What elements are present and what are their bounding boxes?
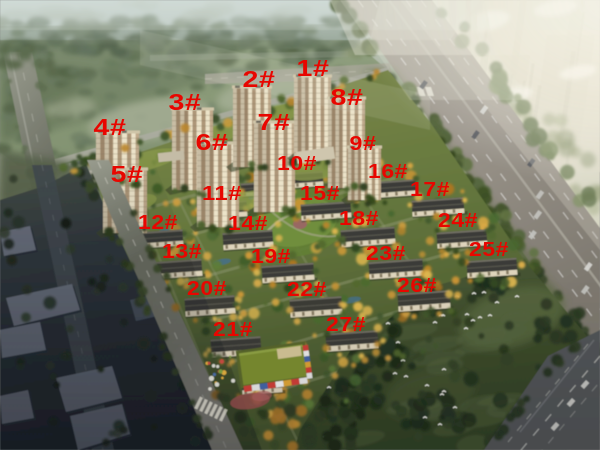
svg-text:19#: 19# [251,246,291,268]
svg-text:20#: 20# [187,278,227,300]
svg-text:15#: 15# [300,183,340,205]
svg-text:25#: 25# [469,239,509,261]
svg-text:22#: 22# [287,279,327,301]
svg-text:8#: 8# [331,84,364,110]
svg-text:24#: 24# [438,210,478,232]
svg-text:17#: 17# [410,179,450,201]
svg-text:13#: 13# [162,241,202,263]
svg-text:11#: 11# [202,183,242,205]
svg-text:14#: 14# [228,213,268,235]
svg-text:5#: 5# [111,161,144,187]
svg-text:12#: 12# [138,212,178,234]
svg-text:9#: 9# [350,133,377,155]
svg-text:6#: 6# [196,129,229,155]
svg-text:18#: 18# [339,208,379,230]
svg-text:10#: 10# [277,153,317,175]
svg-text:7#: 7# [258,109,291,135]
svg-text:21#: 21# [213,319,253,341]
svg-text:23#: 23# [366,243,406,265]
svg-text:4#: 4# [94,114,127,140]
svg-text:2#: 2# [243,66,276,92]
svg-text:1#: 1# [297,55,330,81]
svg-text:26#: 26# [397,275,437,297]
svg-text:3#: 3# [169,89,202,115]
svg-text:16#: 16# [368,161,408,183]
svg-text:27#: 27# [326,314,366,336]
